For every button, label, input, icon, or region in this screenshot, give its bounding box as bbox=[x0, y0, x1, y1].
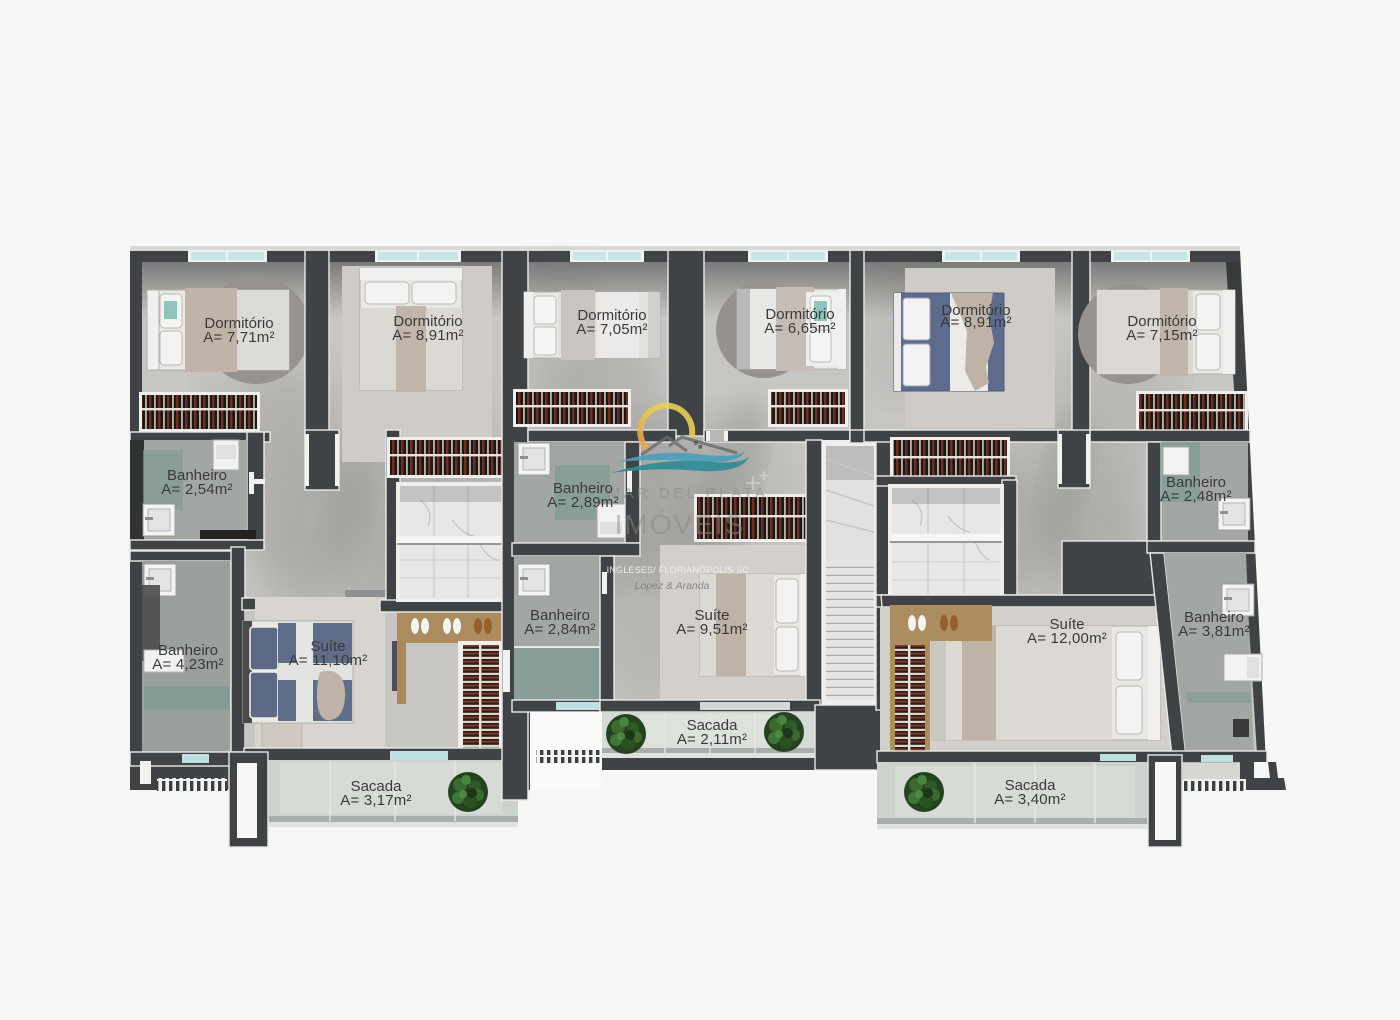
svg-text:A= 2,54m²: A= 2,54m² bbox=[161, 481, 232, 498]
svg-text:A= 2,84m²: A= 2,84m² bbox=[524, 621, 595, 638]
svg-text:A= 3,17m²: A= 3,17m² bbox=[340, 792, 411, 809]
svg-text:A= 2,11m²: A= 2,11m² bbox=[677, 731, 747, 748]
svg-text:A= 8,91m²: A= 8,91m² bbox=[392, 327, 463, 344]
svg-text:MAR DEL PLATA: MAR DEL PLATA bbox=[607, 485, 768, 502]
svg-text:A= 4,23m²: A= 4,23m² bbox=[152, 656, 223, 673]
svg-text:Lopez & Aranda: Lopez & Aranda bbox=[635, 580, 710, 592]
svg-text:A= 2,89m²: A= 2,89m² bbox=[547, 494, 618, 511]
svg-text:A= 12,00m²: A= 12,00m² bbox=[1027, 630, 1107, 647]
svg-text:A= 7,15m²: A= 7,15m² bbox=[1126, 327, 1197, 344]
svg-text:A= 3,81m²: A= 3,81m² bbox=[1178, 623, 1249, 640]
svg-text:A= 9,51m²: A= 9,51m² bbox=[676, 621, 747, 638]
svg-text:A= 3,40m²: A= 3,40m² bbox=[994, 791, 1065, 808]
svg-text:INGLESES/ FLORIANÓPOLIS SC: INGLESES/ FLORIANÓPOLIS SC bbox=[607, 565, 750, 575]
svg-text:A= 6,65m²: A= 6,65m² bbox=[764, 320, 835, 337]
svg-text:A= 7,05m²: A= 7,05m² bbox=[576, 321, 647, 338]
svg-text:IMÓVEIS: IMÓVEIS bbox=[615, 509, 746, 540]
svg-text:A= 11,10m²: A= 11,10m² bbox=[289, 652, 368, 669]
svg-text:A= 7,71m²: A= 7,71m² bbox=[203, 329, 274, 346]
svg-text:A= 2,48m²: A= 2,48m² bbox=[1160, 488, 1231, 505]
svg-text:A= 8,91m²: A= 8,91m² bbox=[940, 314, 1011, 331]
